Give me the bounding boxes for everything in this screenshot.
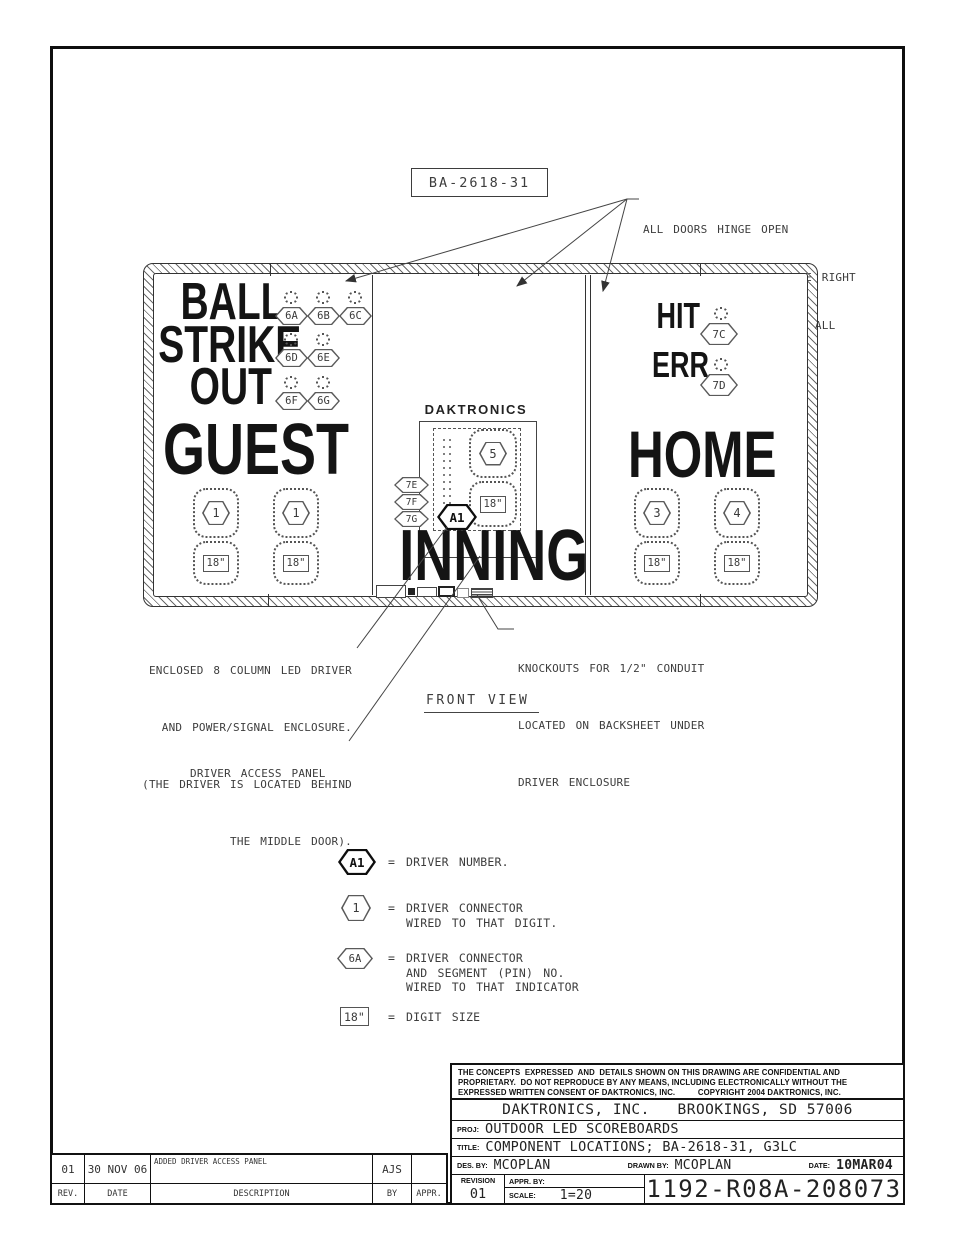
- connector-tag: 3: [643, 501, 671, 525]
- indicator-lamp-icon: [315, 290, 331, 305]
- knockout-box-striped: [471, 588, 493, 598]
- scale-label: SCALE:: [509, 1191, 536, 1200]
- digit-outline: 18": [714, 541, 760, 585]
- digit-size: 18": [480, 496, 507, 513]
- digit-outline: 18": [193, 541, 239, 585]
- des-by-label: DES. BY:: [457, 1161, 488, 1170]
- appr-header: APPR.: [412, 1184, 446, 1203]
- hinge-tick: [700, 594, 701, 607]
- company-line: DAKTRONICS, INC. BROOKINGS, SD 57006: [452, 1100, 903, 1120]
- connector-tag: 1: [282, 501, 310, 525]
- rev-header: REV.: [52, 1184, 85, 1203]
- bottom-row: REVISION 01 APPR. BY: SCALE: 1=20 1192-R…: [452, 1175, 903, 1203]
- digit-outline: 4: [714, 488, 760, 538]
- front-view-label: FRONT VIEW: [424, 693, 539, 713]
- label-guest: GUEST: [163, 420, 349, 480]
- revision-table: 01 30 NOV 06 ADDED DRIVER ACCESS PANEL A…: [50, 1153, 448, 1205]
- knockout-box: [417, 587, 437, 597]
- home-digit-2: 4 18": [714, 488, 760, 585]
- rev-cell: 01: [52, 1155, 85, 1184]
- proj-value: OUTDOOR LED SCOREBOARDS: [485, 1121, 679, 1137]
- label-home: HOME: [628, 426, 777, 482]
- title-label: TITLE:: [457, 1143, 479, 1152]
- connector-tag: 1: [202, 501, 230, 525]
- legend-size-symbol: 18": [340, 1007, 369, 1026]
- indicator-lamp-icon: [347, 290, 363, 305]
- indicator-lamp-icon: [713, 306, 729, 321]
- indicator-lamp-icon: [315, 332, 331, 347]
- legend-indicator-text: DRIVER CONNECTOR AND SEGMENT (PIN) NO. W…: [406, 951, 579, 995]
- indicator-lamp-icon: [283, 375, 299, 390]
- by-header: BY: [373, 1184, 412, 1203]
- connector-tag-6c: 6C: [339, 307, 372, 325]
- knockout-box: [408, 588, 415, 595]
- title-row: TITLE: COMPONENT LOCATIONS; BA-2618-31, …: [452, 1139, 903, 1157]
- legend-indicator-symbol: 6A: [337, 948, 373, 969]
- drawing-number: BA-2618-31: [429, 175, 530, 191]
- indicator-lamp-icon: [713, 357, 729, 372]
- note-knockouts: KNOCKOUTS FOR 1/2" CONDUIT LOCATED ON BA…: [518, 621, 704, 830]
- digit-size: 18": [283, 555, 310, 572]
- connector-tag: 4: [723, 501, 751, 525]
- legend-digit-text: DRIVER CONNECTOR WIRED TO THAT DIGIT.: [406, 901, 557, 930]
- drawn-by-label: DRAWN BY:: [628, 1161, 669, 1170]
- equals-sign: =: [388, 951, 395, 965]
- label-hit: HIT: [655, 301, 700, 331]
- revision-value: 01: [470, 1186, 486, 1202]
- appr-by-label: APPR. BY:: [509, 1177, 545, 1186]
- title-block: THE CONCEPTS EXPRESSED AND DETAILS SHOWN…: [450, 1063, 905, 1205]
- disclaimer: THE CONCEPTS EXPRESSED AND DETAILS SHOWN…: [452, 1065, 903, 1100]
- digit-outline: 1: [273, 488, 319, 538]
- connector-tag-7e: 7E: [394, 477, 429, 493]
- brand-label: DAKTRONICS: [419, 402, 533, 417]
- connector-tag-6e: 6E: [307, 349, 340, 367]
- label-err: ERR: [652, 350, 700, 380]
- connector-tag-6d: 6D: [275, 349, 308, 367]
- driver-access-panel: [376, 585, 406, 598]
- drawing-sheet: BA-2618-31 ALL DOORS HINGE OPEN (THE MID…: [0, 0, 954, 1235]
- description-header: DESCRIPTION: [151, 1184, 373, 1203]
- connector-tag-6g: 6G: [307, 392, 340, 410]
- rev-date-cell: 30 NOV 06: [85, 1155, 151, 1184]
- digit-outline: 1: [193, 488, 239, 538]
- connector-tag-6f: 6F: [275, 392, 308, 410]
- designer-row: DES. BY: MCOPLAN DRAWN BY: MCOPLAN DATE:…: [452, 1157, 903, 1175]
- rev-by-cell: AJS: [373, 1155, 412, 1184]
- door-divider-left: [372, 275, 373, 595]
- equals-sign: =: [388, 855, 395, 869]
- digit-size: 18": [203, 555, 230, 572]
- rev-appr-cell: [412, 1155, 446, 1184]
- scale-value: 1=20: [560, 1188, 593, 1203]
- knockout-box: [457, 588, 469, 598]
- connector-tag-7f: 7F: [394, 494, 429, 510]
- indicator-lamp-icon: [283, 290, 299, 305]
- home-digit-1: 3 18": [634, 488, 680, 585]
- approval-scale-cell: APPR. BY: SCALE: 1=20: [505, 1175, 645, 1203]
- drawing-number-box: BA-2618-31: [411, 168, 548, 197]
- title-value: COMPONENT LOCATIONS; BA-2618-31, G3LC: [485, 1139, 797, 1155]
- digit-size: 18": [644, 555, 671, 572]
- guest-digit-1: 1 18": [193, 488, 239, 585]
- digit-outline: 18": [634, 541, 680, 585]
- connector-tag-7d: 7D: [700, 374, 738, 396]
- digit-size: 18": [724, 555, 751, 572]
- indicator-lamp-icon: [283, 332, 299, 347]
- knockout-box: [438, 586, 455, 597]
- proj-label: PROJ:: [457, 1125, 479, 1134]
- drawing-id: 1192-R08A-208073: [645, 1175, 903, 1203]
- revision-cell: REVISION 01: [452, 1175, 505, 1203]
- des-by-value: MCOPLAN: [494, 1158, 551, 1173]
- drawn-by-value: MCOPLAN: [675, 1158, 732, 1173]
- digit-outline: 3: [634, 488, 680, 538]
- note-driver-access: DRIVER ACCESS PANEL: [190, 734, 326, 814]
- digit-outline: 18": [273, 541, 319, 585]
- equals-sign: =: [388, 1010, 395, 1024]
- hinge-tick: [700, 263, 701, 276]
- project-row: PROJ: OUTDOOR LED SCOREBOARDS: [452, 1121, 903, 1139]
- digit-outline: 5: [469, 429, 517, 478]
- revision-label: REVISION: [461, 1176, 495, 1185]
- legend-size-text: DIGIT SIZE: [406, 1010, 480, 1025]
- door-divider-right-2: [590, 275, 591, 595]
- legend-digit-symbol: 1: [341, 895, 371, 921]
- label-inning: INNING: [399, 526, 551, 586]
- equals-sign: =: [388, 901, 395, 915]
- hinge-tick: [478, 263, 479, 276]
- label-out: OUT: [181, 365, 273, 409]
- guest-digit-2: 1 18": [273, 488, 319, 585]
- rev-description-cell: ADDED DRIVER ACCESS PANEL: [151, 1155, 373, 1184]
- indicator-lamp-icon: [315, 375, 331, 390]
- connector-tag-6b: 6B: [307, 307, 340, 325]
- legend-driver-symbol: A1: [338, 849, 376, 875]
- date-label: DATE:: [809, 1161, 830, 1170]
- hinge-tick: [268, 594, 269, 607]
- connector-tag: 5: [479, 442, 507, 466]
- date-header: DATE: [85, 1184, 151, 1203]
- date-value: 10MAR04: [836, 1158, 893, 1173]
- legend-driver-text: DRIVER NUMBER.: [406, 855, 509, 870]
- connector-tag-7c: 7C: [700, 323, 738, 345]
